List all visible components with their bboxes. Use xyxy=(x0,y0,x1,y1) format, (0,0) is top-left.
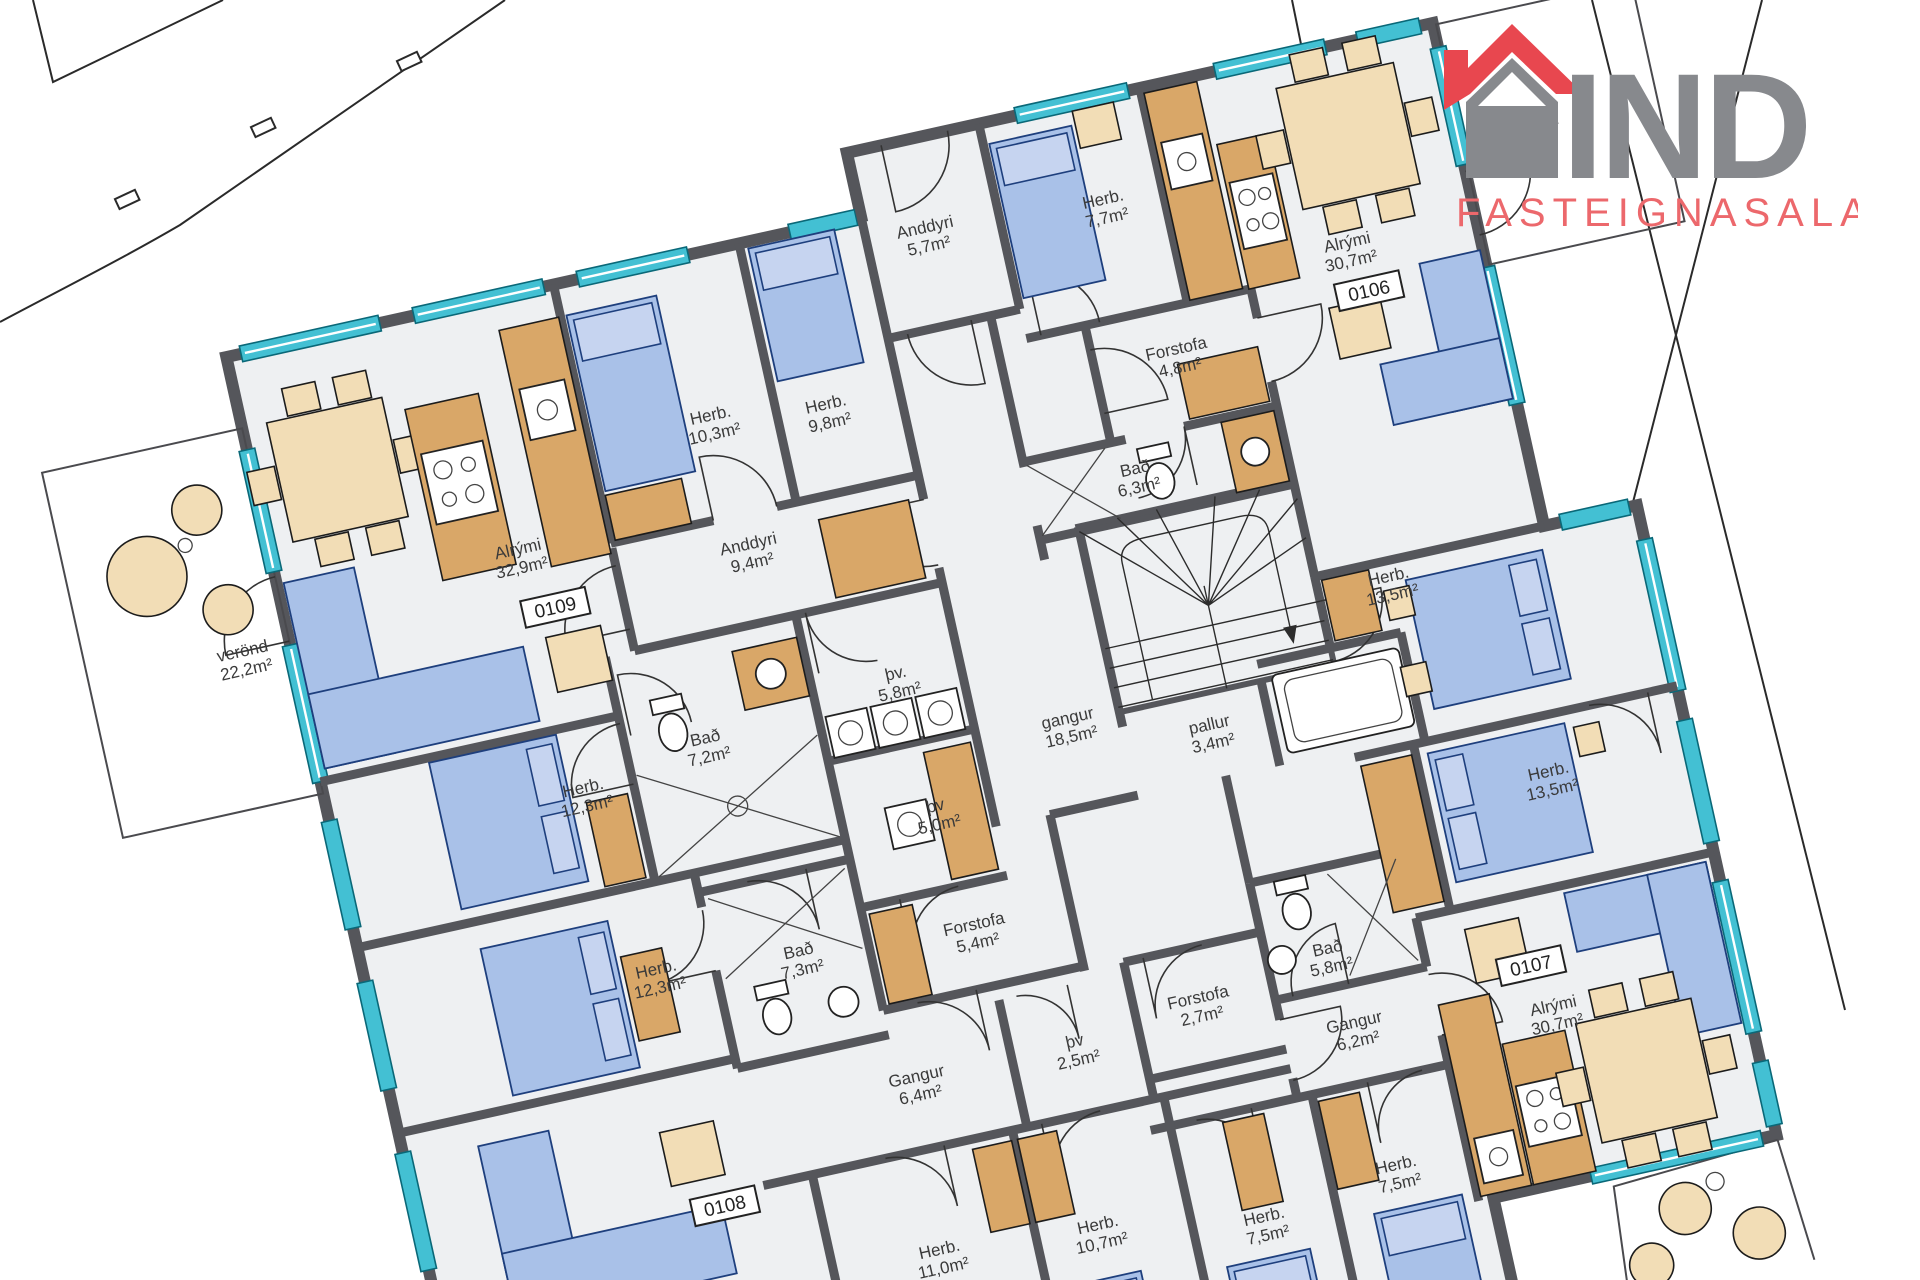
dining-table xyxy=(1576,998,1718,1143)
lind-logo: IND FASTEIGNASALA xyxy=(1438,6,1858,246)
floorplan-page: verönd 22,2m² Alrými 32,9m² Herb. 10,3m²… xyxy=(0,0,1920,1280)
nightstand xyxy=(1573,722,1605,757)
kitchen-sink xyxy=(1474,1130,1523,1184)
terrace-stool xyxy=(1728,1202,1790,1264)
logo-brand-text: IND xyxy=(1562,42,1808,210)
ottoman xyxy=(546,626,613,693)
terrace-stool xyxy=(1625,1239,1677,1280)
washer xyxy=(825,708,875,758)
site-post xyxy=(115,190,140,209)
kitchen-sink xyxy=(1161,134,1212,190)
terrace-detail xyxy=(177,537,194,554)
washer xyxy=(870,698,920,748)
terrace-table xyxy=(99,529,194,624)
terrace-stool xyxy=(1654,1177,1716,1239)
nightstand xyxy=(1072,102,1121,148)
kitchen-sink xyxy=(519,379,575,440)
site-post xyxy=(397,52,422,71)
site-post xyxy=(251,118,276,137)
nightstand xyxy=(1400,662,1432,697)
ottoman xyxy=(660,1121,726,1187)
terrace-chair xyxy=(167,480,227,540)
terrace-detail xyxy=(1704,1171,1725,1192)
dining-table xyxy=(267,397,409,542)
logo-subtitle-text: FASTEIGNASALA xyxy=(1456,191,1858,235)
site-line-notch xyxy=(33,0,223,82)
dining-table xyxy=(1276,63,1420,210)
terrace-furniture xyxy=(91,478,258,658)
site-line-northwest xyxy=(0,0,505,322)
